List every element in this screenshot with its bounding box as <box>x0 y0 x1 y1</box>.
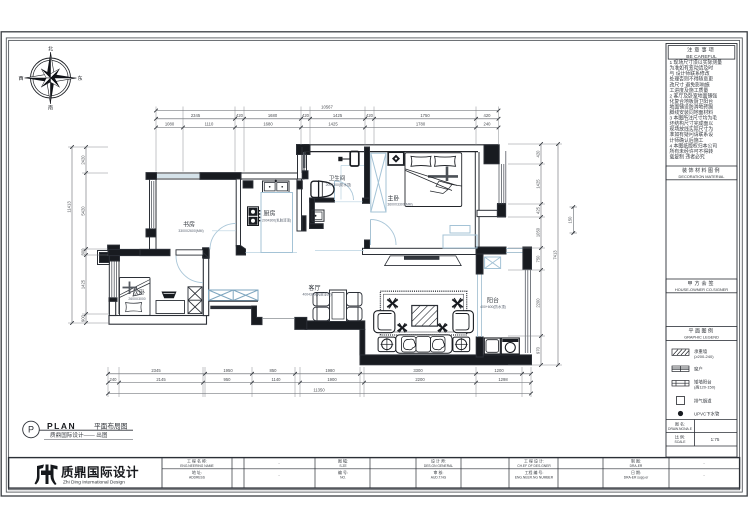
svg-text:420: 420 <box>236 113 244 118</box>
svg-text:3300: 3300 <box>413 368 423 373</box>
svg-text:甲方会签: 甲方会签 <box>687 280 715 287</box>
svg-text:书房: 书房 <box>183 221 195 229</box>
svg-text:ENG.NEERING NAME: ENG.NEERING NAME <box>180 464 214 468</box>
svg-text:1 现场尺寸须以实际测量: 1 现场尺寸须以实际测量 <box>670 59 723 66</box>
svg-text:1780: 1780 <box>416 122 426 127</box>
svg-text:P: P <box>28 425 34 435</box>
svg-text:化复合地板厨卫阳台: 化复合地板厨卫阳台 <box>670 98 714 105</box>
svg-text:DES.GN GENERAL: DES.GN GENERAL <box>424 464 453 468</box>
svg-text:工 程 设 计:: 工 程 设 计: <box>524 458 544 463</box>
svg-text:1050: 1050 <box>535 227 540 237</box>
svg-text:5420: 5420 <box>80 206 85 216</box>
svg-text:平面布局图: 平面布局图 <box>94 422 128 431</box>
svg-text:420: 420 <box>366 113 374 118</box>
svg-text:240: 240 <box>484 122 492 127</box>
svg-text:卫生间: 卫生间 <box>329 174 346 182</box>
svg-text:950: 950 <box>224 377 232 382</box>
svg-text:质鼎国际设计—— 出图: 质鼎国际设计—— 出图 <box>50 431 108 439</box>
svg-text:平面图例: 平面图例 <box>688 328 714 335</box>
svg-text:南: 南 <box>48 105 53 112</box>
svg-text:图 名:: 图 名: <box>675 421 685 426</box>
svg-text:900: 900 <box>80 314 85 322</box>
svg-text:2600X3000: 2600X3000 <box>128 297 145 301</box>
svg-text:西: 西 <box>18 76 23 82</box>
svg-text:载复制 违者必究: 载复制 违者必究 <box>670 154 705 161</box>
svg-text:S.ZE: S.ZE <box>339 464 347 468</box>
svg-text:3300X2600(MM): 3300X2600(MM) <box>178 229 203 233</box>
svg-text:BE CAREFUL: BE CAREFUL <box>686 54 717 60</box>
svg-text:客厅: 客厅 <box>308 284 320 292</box>
svg-text:11350: 11350 <box>313 388 325 393</box>
svg-text:注意事项: 注意事项 <box>687 46 716 54</box>
svg-text:1900: 1900 <box>327 377 337 382</box>
svg-text:厨房: 厨房 <box>263 210 275 218</box>
svg-text:1750: 1750 <box>420 113 430 118</box>
svg-text:ADDRESS: ADDRESS <box>189 475 206 479</box>
svg-text:设 计 师:: 设 计 师: <box>431 458 446 463</box>
svg-text:2 客厅及卧室地面铺强: 2 客厅及卧室地面铺强 <box>670 92 718 99</box>
svg-text:东: 东 <box>77 75 82 82</box>
svg-text:1425: 1425 <box>333 113 343 118</box>
svg-text:DRA-ER: DRA-ER <box>630 464 643 468</box>
svg-text:工 程 名 称:: 工 程 名 称: <box>187 458 207 463</box>
svg-text:地 址:: 地 址: <box>192 470 202 475</box>
svg-text:2345: 2345 <box>191 113 201 118</box>
svg-text:比 例:: 比 例: <box>675 434 685 439</box>
svg-text:(高120-150): (高120-150) <box>694 384 716 390</box>
svg-text:420: 420 <box>484 113 492 118</box>
svg-text:计师确认后施工: 计师确认后施工 <box>670 137 704 144</box>
svg-text:1425: 1425 <box>80 279 85 289</box>
svg-text:SCALE: SCALE <box>674 440 686 444</box>
svg-text:420: 420 <box>535 150 540 158</box>
svg-text:1110: 1110 <box>205 122 214 127</box>
svg-text:图 幅:: 图 幅: <box>338 458 348 463</box>
svg-text:质鼎国际设计: 质鼎国际设计 <box>61 465 139 480</box>
svg-text:DRAW.NGNA.E: DRAW.NGNA.E <box>668 427 693 431</box>
svg-text:Zhi Ding International Design: Zhi Ding International Design <box>63 480 125 486</box>
svg-text:工进度及施工质量: 工进度及施工质量 <box>670 87 709 94</box>
svg-text:1680: 1680 <box>268 113 278 118</box>
svg-text:ENG.NEER.NG NUMBER: ENG.NEER.NG NUMBER <box>515 475 554 479</box>
svg-text:窗户: 窗户 <box>694 366 703 373</box>
svg-text:阳台: 阳台 <box>487 297 499 305</box>
svg-text:工程 编 号:: 工程 编 号: <box>525 470 544 475</box>
svg-text:2345: 2345 <box>151 368 161 373</box>
svg-text:2004300(乳胶漆顶): 2004300(乳胶漆顶) <box>262 218 291 223</box>
svg-text:1140: 1140 <box>271 377 281 382</box>
svg-text:现场放线实际尺寸为: 现场放线实际尺寸为 <box>670 126 714 133</box>
svg-text:CH.EF OF DES.GNER: CH.EF OF DES.GNER <box>517 464 551 468</box>
svg-text:4 本图纸版权归本公司: 4 本图纸版权归本公司 <box>670 142 718 149</box>
svg-text:240: 240 <box>110 377 118 382</box>
svg-text:(≥200-240): (≥200-240) <box>694 354 714 359</box>
svg-text:所有未经许可不得转: 所有未经许可不得转 <box>670 148 714 155</box>
svg-text:425: 425 <box>535 206 540 214</box>
svg-text:编 号:: 编 号: <box>338 470 348 475</box>
svg-text:处理否则不得随意更: 处理否则不得随意更 <box>670 76 714 83</box>
svg-text:DECORATION MATERIAL: DECORATION MATERIAL <box>679 174 726 179</box>
svg-text:10567: 10567 <box>321 105 333 110</box>
svg-text:1680: 1680 <box>263 122 273 127</box>
svg-text:UPVC下水管: UPVC下水管 <box>694 411 720 418</box>
svg-text:1425: 1425 <box>328 122 338 127</box>
svg-text:地面铺设防滑地砖踢: 地面铺设防滑地砖踢 <box>670 104 714 111</box>
svg-text:3600X3300(MM): 3600X3300(MM) <box>387 203 412 207</box>
svg-text:排气烟道: 排气烟道 <box>694 398 712 405</box>
svg-text:改尺寸 避免影响施: 改尺寸 避免影响施 <box>670 81 710 88</box>
svg-text:审 核:: 审 核: <box>434 470 444 475</box>
svg-text:次卧: 次卧 <box>133 289 145 297</box>
svg-text:脚线安装同地面材料: 脚线安装同地面材料 <box>670 109 714 116</box>
svg-text:4004300(乳胶漆顶): 4004300(乳胶漆顶) <box>302 292 331 297</box>
svg-text:1425: 1425 <box>535 179 540 189</box>
svg-text:HOUSE-OWNER CO-SIGNER: HOUSE-OWNER CO-SIGNER <box>675 287 728 292</box>
svg-text:北: 北 <box>48 46 53 53</box>
svg-text:1080: 1080 <box>165 122 175 127</box>
svg-text:1950: 1950 <box>223 368 233 373</box>
svg-text:日 期:: 日 期: <box>631 470 641 475</box>
svg-text:2004300(防水顶): 2004300(防水顶) <box>326 182 352 187</box>
svg-text:3 本图所注尺寸均为毛: 3 本图所注尺寸均为毛 <box>670 115 718 122</box>
svg-text:与 设计师联系修改: 与 设计师联系修改 <box>670 70 710 77</box>
svg-text:2200: 2200 <box>535 298 540 308</box>
svg-text:1298: 1298 <box>498 377 508 382</box>
svg-text:坯结构尺寸完成面以: 坯结构尺寸完成面以 <box>670 120 714 127</box>
svg-text:装饰材料图例: 装饰材料图例 <box>682 167 721 174</box>
svg-text:970: 970 <box>535 346 540 354</box>
svg-text:2145: 2145 <box>156 377 166 382</box>
svg-text:GRAPHIC LEGEND: GRAPHIC LEGEND <box>684 335 719 340</box>
svg-text:7413: 7413 <box>552 250 557 260</box>
svg-text:11413: 11413 <box>66 201 71 213</box>
svg-text:DRA-ER supp.er: DRA-ER supp.er <box>624 475 649 479</box>
svg-text:主卧: 主卧 <box>387 195 399 203</box>
svg-text:1:75: 1:75 <box>711 437 720 442</box>
svg-text:AUD.T.NG: AUD.T.NG <box>431 475 447 479</box>
svg-text:1200: 1200 <box>494 368 504 373</box>
svg-text:2200: 2200 <box>415 377 425 382</box>
svg-text:为准如有变动请及时: 为准如有变动请及时 <box>670 65 714 72</box>
svg-text:750: 750 <box>535 255 540 263</box>
svg-text:150: 150 <box>568 216 573 224</box>
svg-text:NO.: NO. <box>340 475 346 479</box>
svg-text:420: 420 <box>302 113 310 118</box>
svg-text:准如有疑问请联系设: 准如有疑问请联系设 <box>670 131 714 138</box>
svg-text:制 图:: 制 图: <box>631 458 641 463</box>
svg-text:PLAN: PLAN <box>47 421 76 431</box>
svg-text:850: 850 <box>270 368 278 373</box>
svg-text:1980: 1980 <box>325 368 335 373</box>
svg-text:2420: 2420 <box>80 155 85 165</box>
svg-text:400+600(防水顶): 400+600(防水顶) <box>480 304 506 309</box>
